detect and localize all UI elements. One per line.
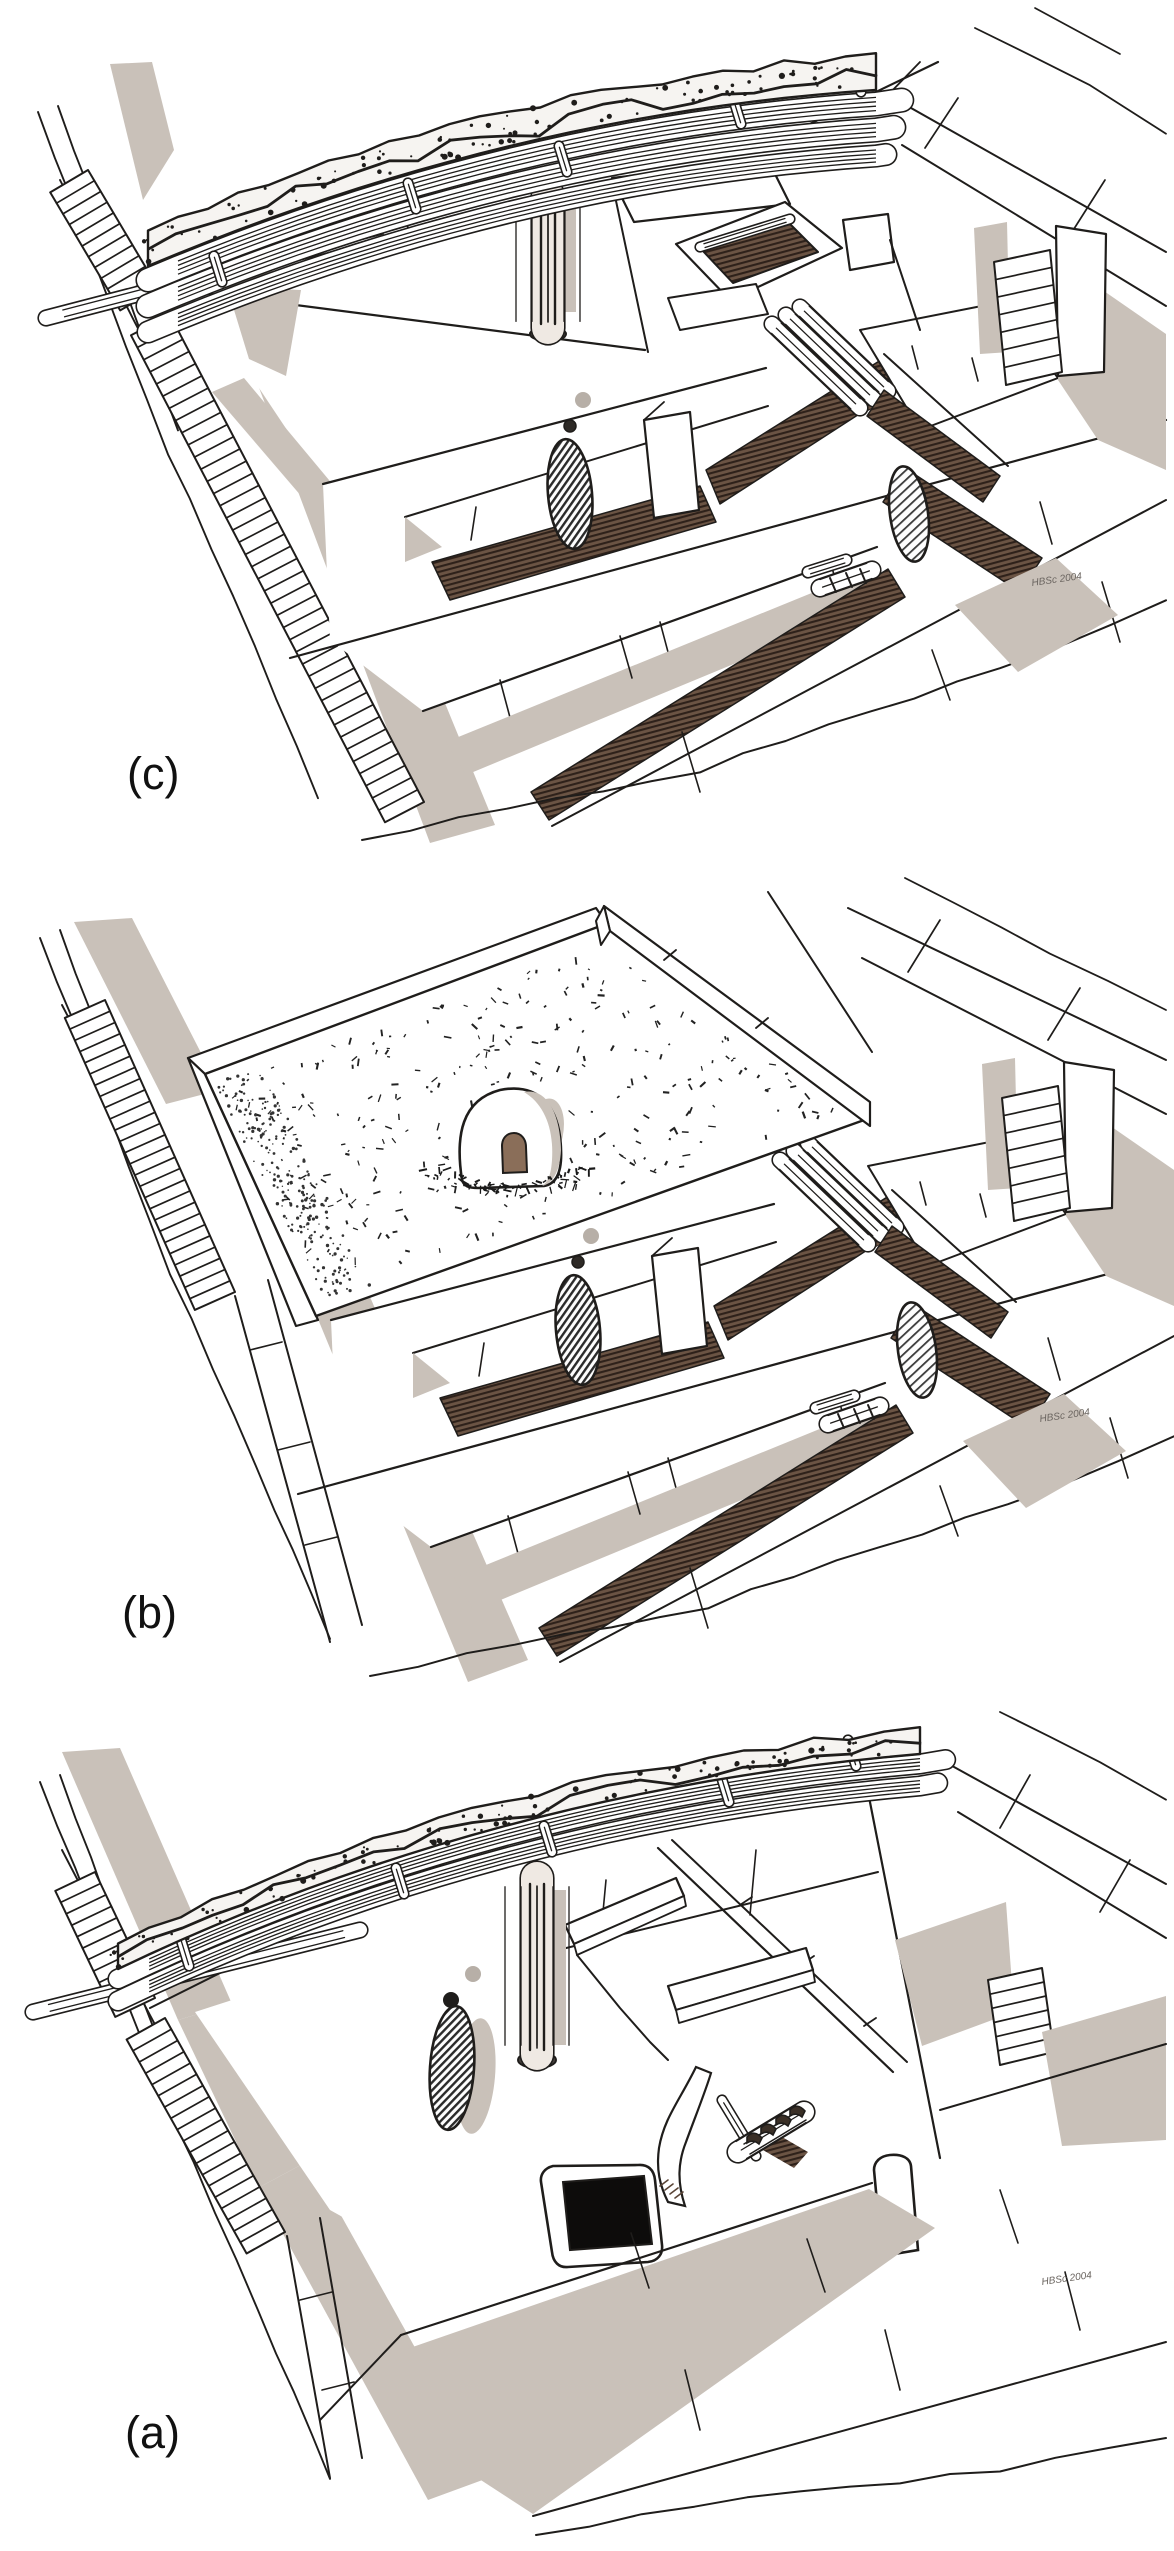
svg-text:(c): (c) [127, 748, 179, 799]
svg-text:(b): (b) [122, 1587, 177, 1638]
svg-text:(a): (a) [125, 2407, 180, 2458]
